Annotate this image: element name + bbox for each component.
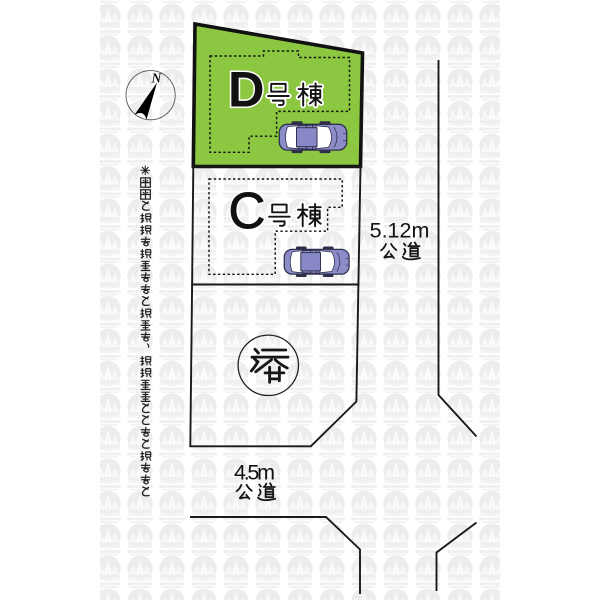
svg-text:4.5m: 4.5m <box>234 461 275 485</box>
svg-text:D: D <box>228 60 264 117</box>
svg-text:5.12m: 5.12m <box>370 219 430 243</box>
svg-text:N: N <box>151 71 163 86</box>
svg-text:C: C <box>229 182 266 239</box>
